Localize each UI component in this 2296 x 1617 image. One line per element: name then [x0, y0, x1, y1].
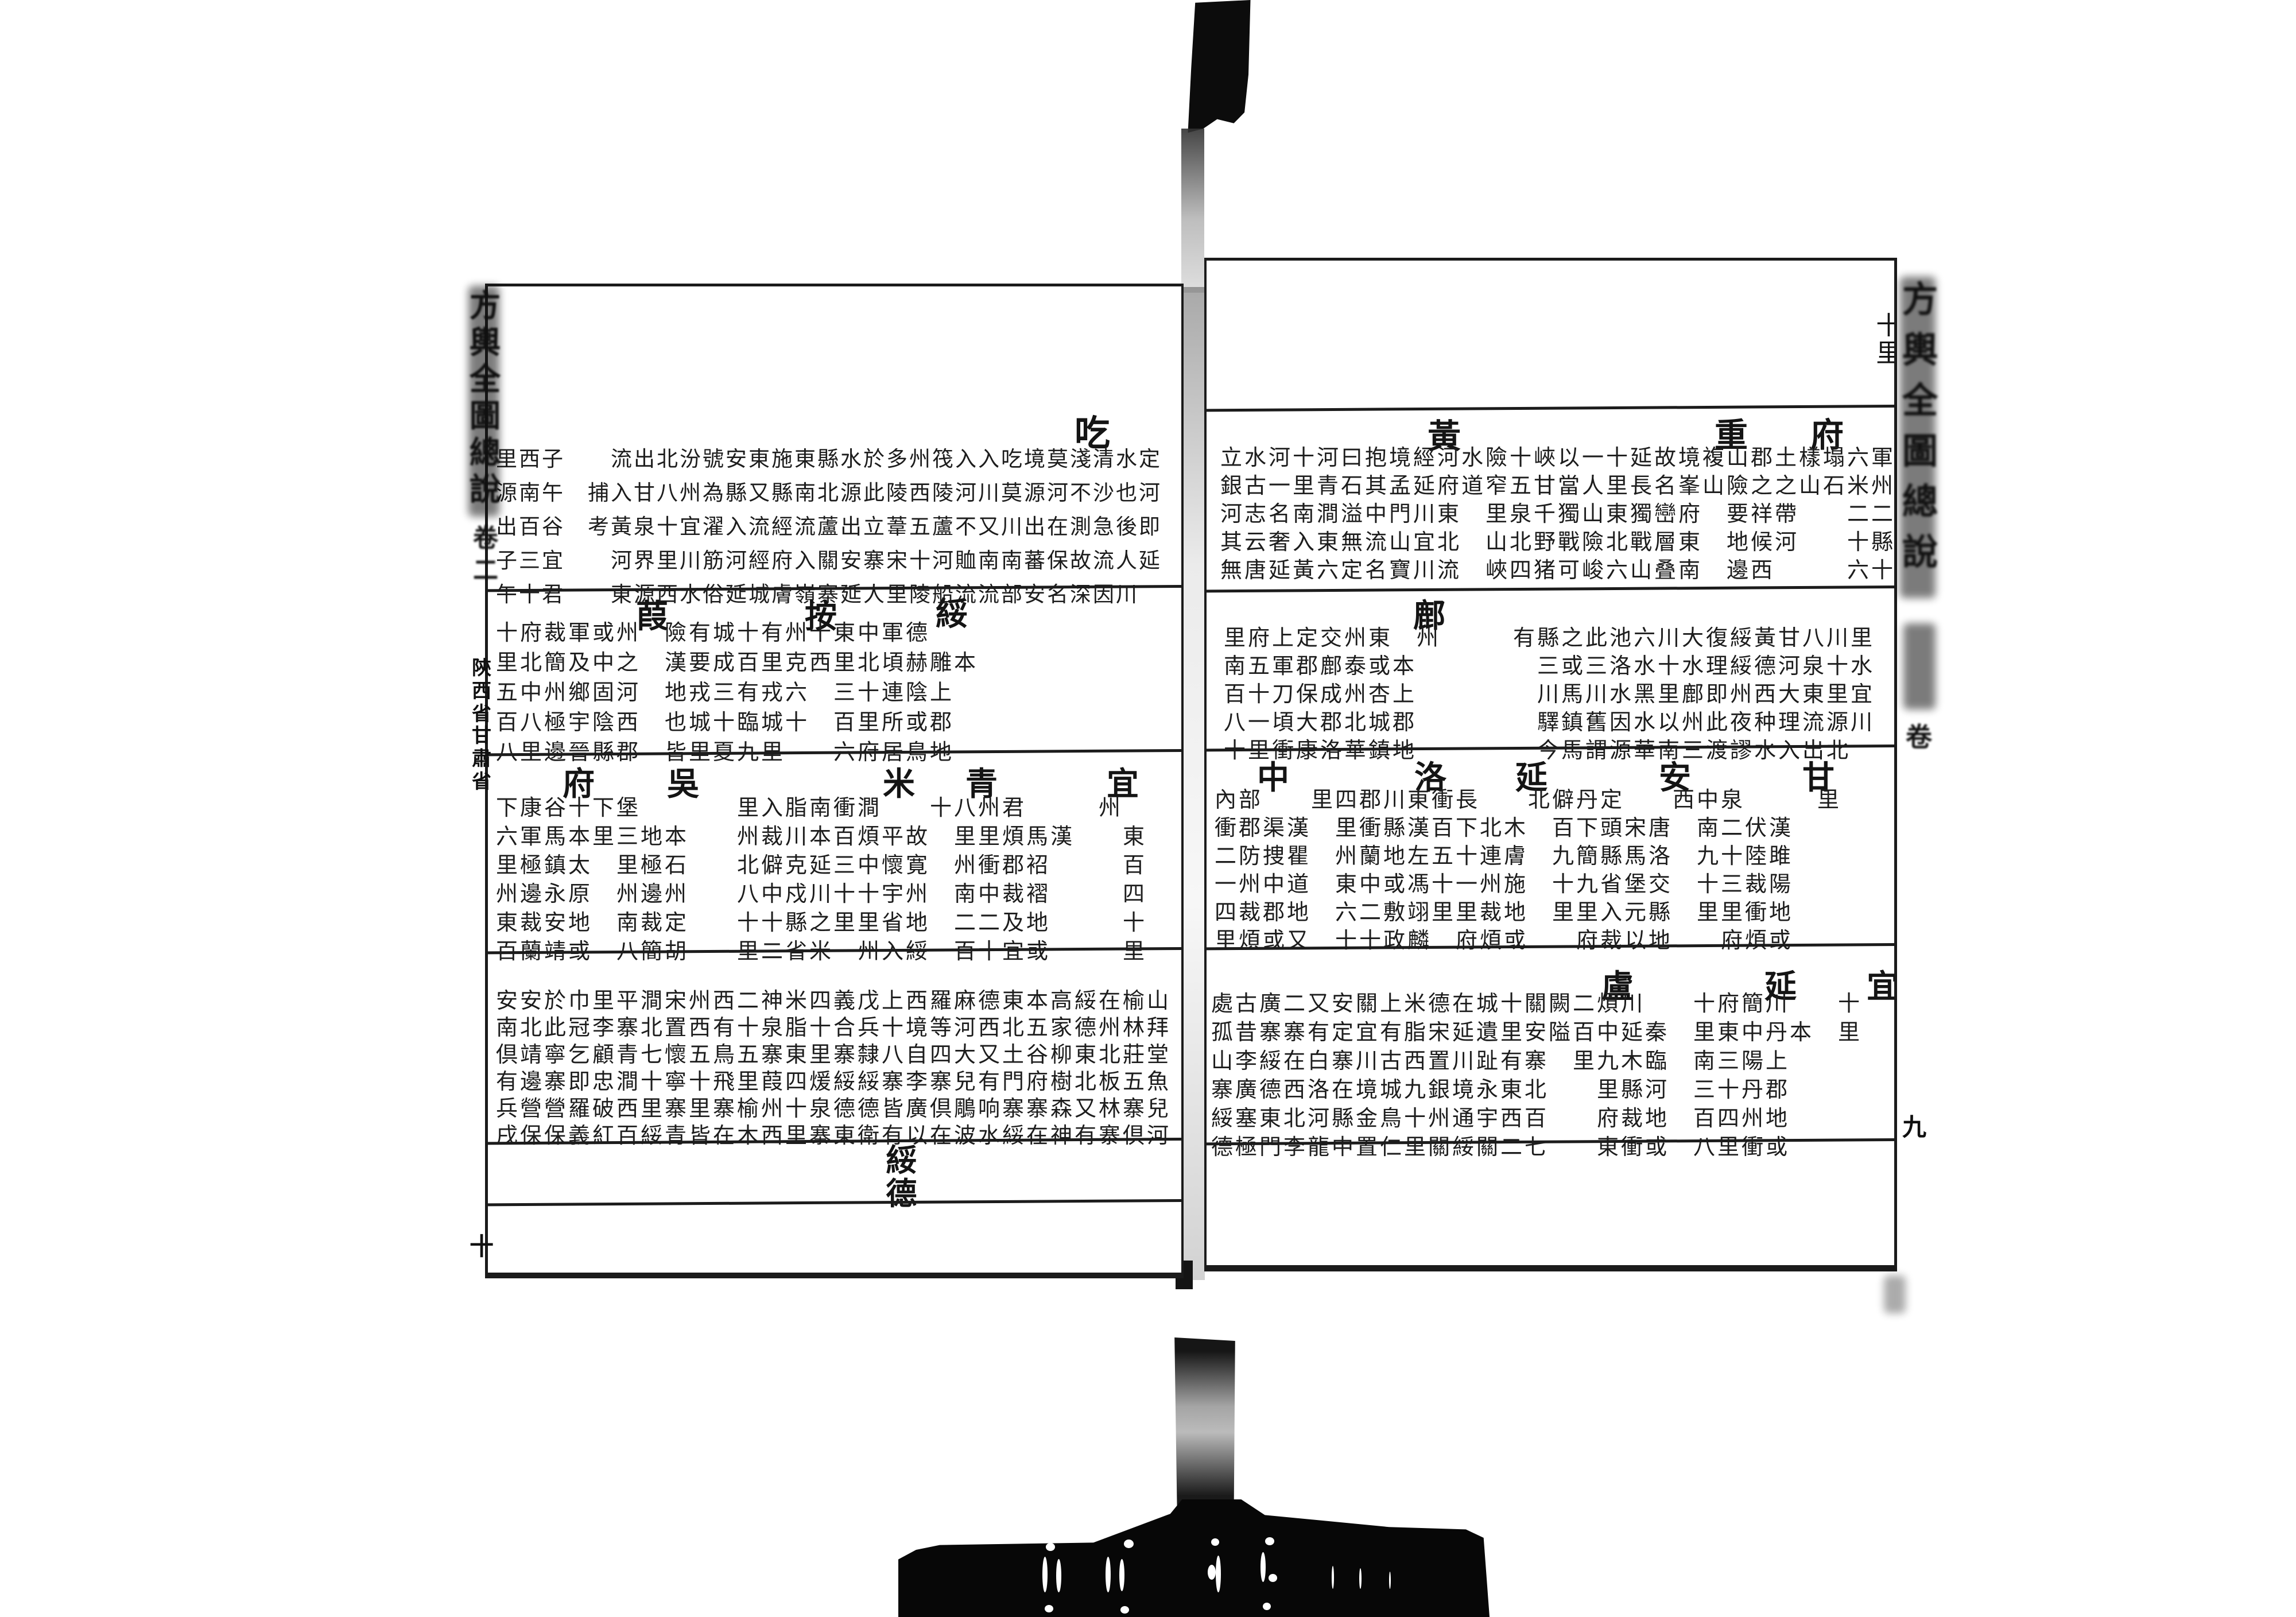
- text-block: 內部 里四郡川東衝長 北僻丹定 西中泉 里衝郡渠漢 里衝縣漢百下北木 百下頭宋唐…: [1215, 786, 1841, 955]
- spine-title-char: 圖: [1902, 434, 1938, 470]
- province-label-char: 肅: [472, 750, 491, 769]
- text-block: 里府上定交州東 州 有縣之此池六川大復綏黃甘八川里南五軍郡鄜泰或本 三或三洛水十…: [1224, 625, 1875, 765]
- text-line: 立水河十河曰抱境經河水險十峽以一十延故境複山郡土樣塌六軍: [1220, 444, 1895, 472]
- film-mark: [1042, 1557, 1048, 1592]
- text-line: 南北此冠李寨北置西有十泉脂十合兵十境等河西北五家德州林拜: [496, 1015, 1171, 1042]
- volume-label-char: 卷: [473, 526, 498, 551]
- film-mark: [1265, 1537, 1274, 1545]
- province-label-char: 陝: [472, 659, 491, 678]
- spine-title-char: 總: [470, 437, 501, 468]
- spine-shadow-bottom: [1173, 1337, 1236, 1510]
- spine-title-char: 說: [470, 474, 501, 505]
- text-line: 南五軍郡鄜泰或本 三或三洛水十水理綏德河泉十水: [1224, 653, 1875, 681]
- film-mark: [1359, 1568, 1362, 1589]
- text-line: 德極門李龍中置仁里關綏關二七 東衝或 八里衝或: [1211, 1133, 1862, 1162]
- text-line: 衝郡渠漢 里衝縣漢百下北木 百下頭宋唐 南二伏漢: [1215, 815, 1841, 843]
- volume-label-char: 卷: [1906, 724, 1932, 751]
- column-fragment: 十 里: [1874, 312, 1897, 367]
- scanner-black-tab: [1186, 0, 1252, 135]
- text-line: 銀古一里青石其孟延府道窄五甘當人里長名峯山險之之山石米州: [1220, 472, 1895, 501]
- text-block: 十府裁軍或州 險有城十有州十東中軍德里北簡及中之 漢要成百里克西里北頃赫雕本五中…: [496, 618, 978, 767]
- text-block: 處古廣二又安關上米德在城十關闕二煩川 十府簡川 十孤昔寨寨有定宜有脂宋延遺里安隘…: [1211, 990, 1862, 1162]
- text-line: 孤昔寨寨有定宜有脂宋延遺里安隘百中延秦 里東中丹本 里: [1211, 1018, 1862, 1047]
- province-label-char: 西: [472, 682, 491, 701]
- spine-title-char: 全: [470, 364, 501, 395]
- text-line: 處古廣二又安關上米德在城十關闕二煩川 十府簡川 十: [1211, 990, 1862, 1018]
- text-line: 里極鎮太 里極石 北僻克延三中懷寛 州衝郡袑 百: [496, 851, 1147, 880]
- film-mark: [1208, 1565, 1216, 1580]
- text-line: 十府裁軍或州 險有城十有州十東中軍德: [496, 618, 978, 648]
- text-line: 百十刀保成州杏上 川馬川水黑里鄜即州西大東里宜: [1224, 681, 1875, 709]
- text-line: 無唐延黃六定名寶川流 峽四猪可峻六山叠南 邊西 六十: [1220, 557, 1895, 585]
- film-mark: [1124, 1540, 1134, 1548]
- text-line: 綏塞東北河縣金鳥十州通宇西百 府裁地 百四州地: [1211, 1104, 1862, 1133]
- text-line: 四裁郡地 六二敷翊里里裁地 里里入元縣 里里衝地: [1215, 899, 1841, 927]
- text-line: 倶靖寧乞顧青七懷五鳥五寨東里寨隸八自四大又土谷柳東北莊堂: [496, 1042, 1171, 1069]
- film-mark: [1119, 1559, 1124, 1591]
- spine-ink-blob: [1903, 623, 1936, 709]
- band-rule: [488, 1199, 1181, 1206]
- text-line: 源南午 捕入甘八州為縣又縣南北源此陵西陵河川莫源河不沙也河: [496, 476, 1162, 510]
- film-mark: [1263, 1603, 1271, 1610]
- page-number-right: 九: [1902, 1116, 1926, 1140]
- film-mark: [1261, 1552, 1266, 1582]
- film-mark: [1046, 1543, 1055, 1551]
- text-line: 山李綏在白寨川古西置川趾有寨 里九木臨 南三陽上: [1211, 1047, 1862, 1076]
- spine-title-char: 總: [1902, 484, 1938, 520]
- text-line: 州邊永原 州邊州 八中戍川十十宇州 南中裁褶 四: [496, 880, 1147, 909]
- text-line: 河志名南澗溢中門川東 里泉千獨山東獨巒府 要祥帶 二二: [1220, 501, 1895, 529]
- text-line: 里北簡及中之 漢要成百里克西里北頃赫雕本: [496, 648, 978, 678]
- spine-title-char: 方: [470, 290, 501, 321]
- text-line: 其云奢入東無流山宜北 山北野戰險北戰層東 地候河 十縣: [1220, 529, 1895, 557]
- text-line: 二防捜瞿 州蘭地左五十連膚 九簡縣馬洛 九十陸雎: [1215, 843, 1841, 871]
- film-mark: [1045, 1605, 1053, 1612]
- text-line: 六軍馬本里三地本 州裁川本百煩平故 里里煩馬漢 東: [496, 823, 1147, 851]
- left-page: 吃里西子 流出北汾號安東施東縣水於多州筏入入吃境莫淺清水定源南午 捕入甘八州為縣…: [485, 284, 1184, 1278]
- text-line: 出百谷 考黃泉十宜濯入流經流蘆出立葦五蘆不又川出在測急後即: [496, 510, 1162, 544]
- film-mark: [1269, 1574, 1277, 1582]
- text-line: 一州中道 東中或馮十一州施 十九省堡交 十三裁陽: [1215, 871, 1841, 899]
- text-line: 寨廣德西洛在境城九銀境永東北 里縣河 三十丹郡: [1211, 1076, 1862, 1104]
- text-line: 內部 里四郡川東衝長 北僻丹定 西中泉 里: [1215, 786, 1841, 815]
- text-line: 有邊寨即忠澗十寧十飛里葭四煖綏綏寨李寨兒有門府樹北板五魚: [496, 1069, 1171, 1096]
- entry-header: 宜: [1867, 971, 1897, 1003]
- text-line: 東裁安地 南裁定 十十縣之里里省地 二二及地 十: [496, 909, 1147, 937]
- film-strip-bar: [898, 1497, 1490, 1617]
- film-mark: [1389, 1572, 1391, 1589]
- province-label-char: 省: [472, 773, 491, 792]
- text-line: 五中州鄉固河 地戎三有戎六 三十連陰上: [496, 678, 978, 708]
- scan-canvas: { "document_title": "方輿全圖總說 卷二", "ink_co…: [0, 0, 2296, 1617]
- text-line: 子三宜 河界里川筋河經府入關安寨宋十河賉南南蕃保故流人延: [496, 544, 1162, 578]
- text-block: 下康谷十下堡 里入脂南衝澗 十八州君 州六軍馬本里三地本 州裁川本百煩平故 里里…: [496, 794, 1147, 966]
- text-line: 里西子 流出北汾號安東施東縣水於多州筏入入吃境莫淺清水定: [496, 443, 1162, 476]
- spine-title-char: 圖: [470, 401, 501, 432]
- text-line: 安安於巾里平澗宋州西二神米四義戊上西羅麻德東本高綏在榆山: [496, 988, 1171, 1015]
- spine-title-char: 輿: [1902, 333, 1938, 369]
- band-rule: [1207, 585, 1894, 592]
- text-block: 立水河十河曰抱境經河水險十峽以一十延故境複山郡土樣塌六軍銀古一里青石其孟延府道窄…: [1220, 444, 1895, 585]
- film-mark: [1211, 1538, 1219, 1546]
- volume-label-char: 二: [473, 558, 498, 583]
- text-line: 百八極宇陰西 也城十臨城十 百里所或郡: [496, 708, 978, 738]
- text-line: 十里衝康洛華鎮地 今馬謂源華南三渡謬水入出北: [1224, 737, 1875, 765]
- text-line: 里煩或又 十十政麟 府煩或 府裁以地 府煩或: [1215, 927, 1841, 955]
- text-line: 里府上定交州東 州 有縣之此池六川大復綏黃甘八川里: [1224, 625, 1875, 653]
- band-rule: [1207, 405, 1894, 412]
- province-label-char: 省: [472, 705, 491, 724]
- film-mark: [1332, 1566, 1334, 1589]
- right-page: 黃重府立水河十河曰抱境經河水險十峽以一十延故境複山郡土樣塌六軍銀古一里青石其孟延…: [1204, 258, 1897, 1271]
- text-block: 安安於巾里平澗宋州西二神米四義戊上西羅麻德東本高綏在榆山南北此冠李寨北置西有十泉…: [496, 988, 1171, 1150]
- spine-title-char: 全: [1902, 383, 1938, 419]
- text-line: 八一頃大郡北城郡 驛鎮舊因水以州此夜种理流源川: [1224, 709, 1875, 737]
- center-fold-shadow: [1183, 287, 1205, 1280]
- page-number-left: 十: [470, 1235, 494, 1259]
- text-line: 兵營營羅破西里寨里寨榆州十泉德德皆廣倶鵰响寨寨森又林寨兒: [496, 1096, 1171, 1123]
- fold-shadow-top: [1181, 129, 1204, 293]
- text-line: 下康谷十下堡 里入脂南衝澗 十八州君 州: [496, 794, 1147, 823]
- film-mark: [1106, 1557, 1111, 1592]
- province-label-char: 甘: [472, 727, 491, 746]
- spine-title-char: 說: [1902, 535, 1938, 571]
- spine-title-char: 方: [1902, 282, 1938, 318]
- film-mark: [1216, 1556, 1221, 1592]
- film-mark: [1056, 1559, 1061, 1592]
- margin-smudge-small: [1884, 1275, 1906, 1313]
- text-line: 戌保保義紅百綏青皆在木西里寨東衛有以在波水綏在神有寨倶河: [496, 1123, 1171, 1150]
- film-mark: [1120, 1606, 1129, 1614]
- spine-title-char: 輿: [470, 327, 501, 358]
